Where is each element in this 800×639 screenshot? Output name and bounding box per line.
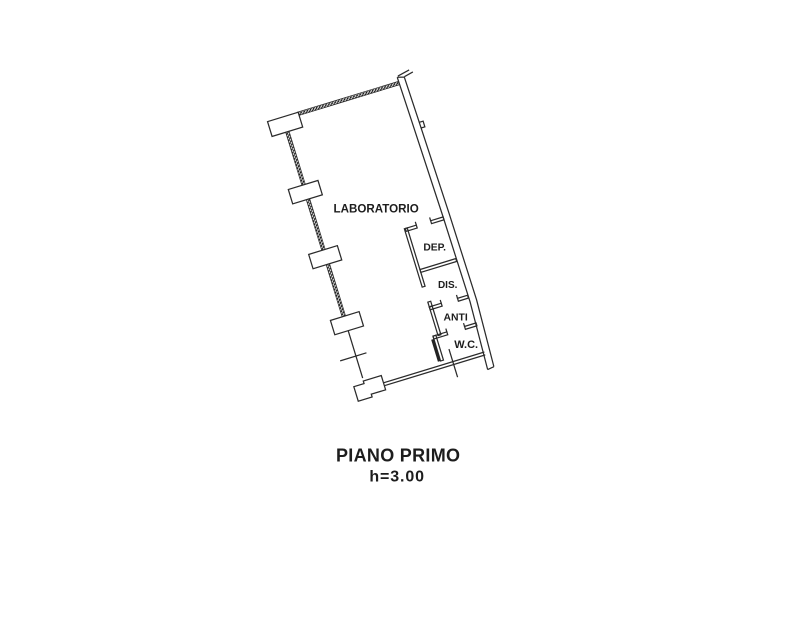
svg-text:ANTI: ANTI <box>444 313 468 324</box>
svg-text:DEP.: DEP. <box>423 243 446 254</box>
svg-text:W.C.: W.C. <box>454 339 478 351</box>
svg-text:LABORATORIO: LABORATORIO <box>334 202 419 215</box>
svg-text:PIANO PRIMO: PIANO PRIMO <box>336 446 460 466</box>
svg-text:DIS.: DIS. <box>438 280 458 291</box>
svg-text:h=3.00: h=3.00 <box>369 469 425 486</box>
